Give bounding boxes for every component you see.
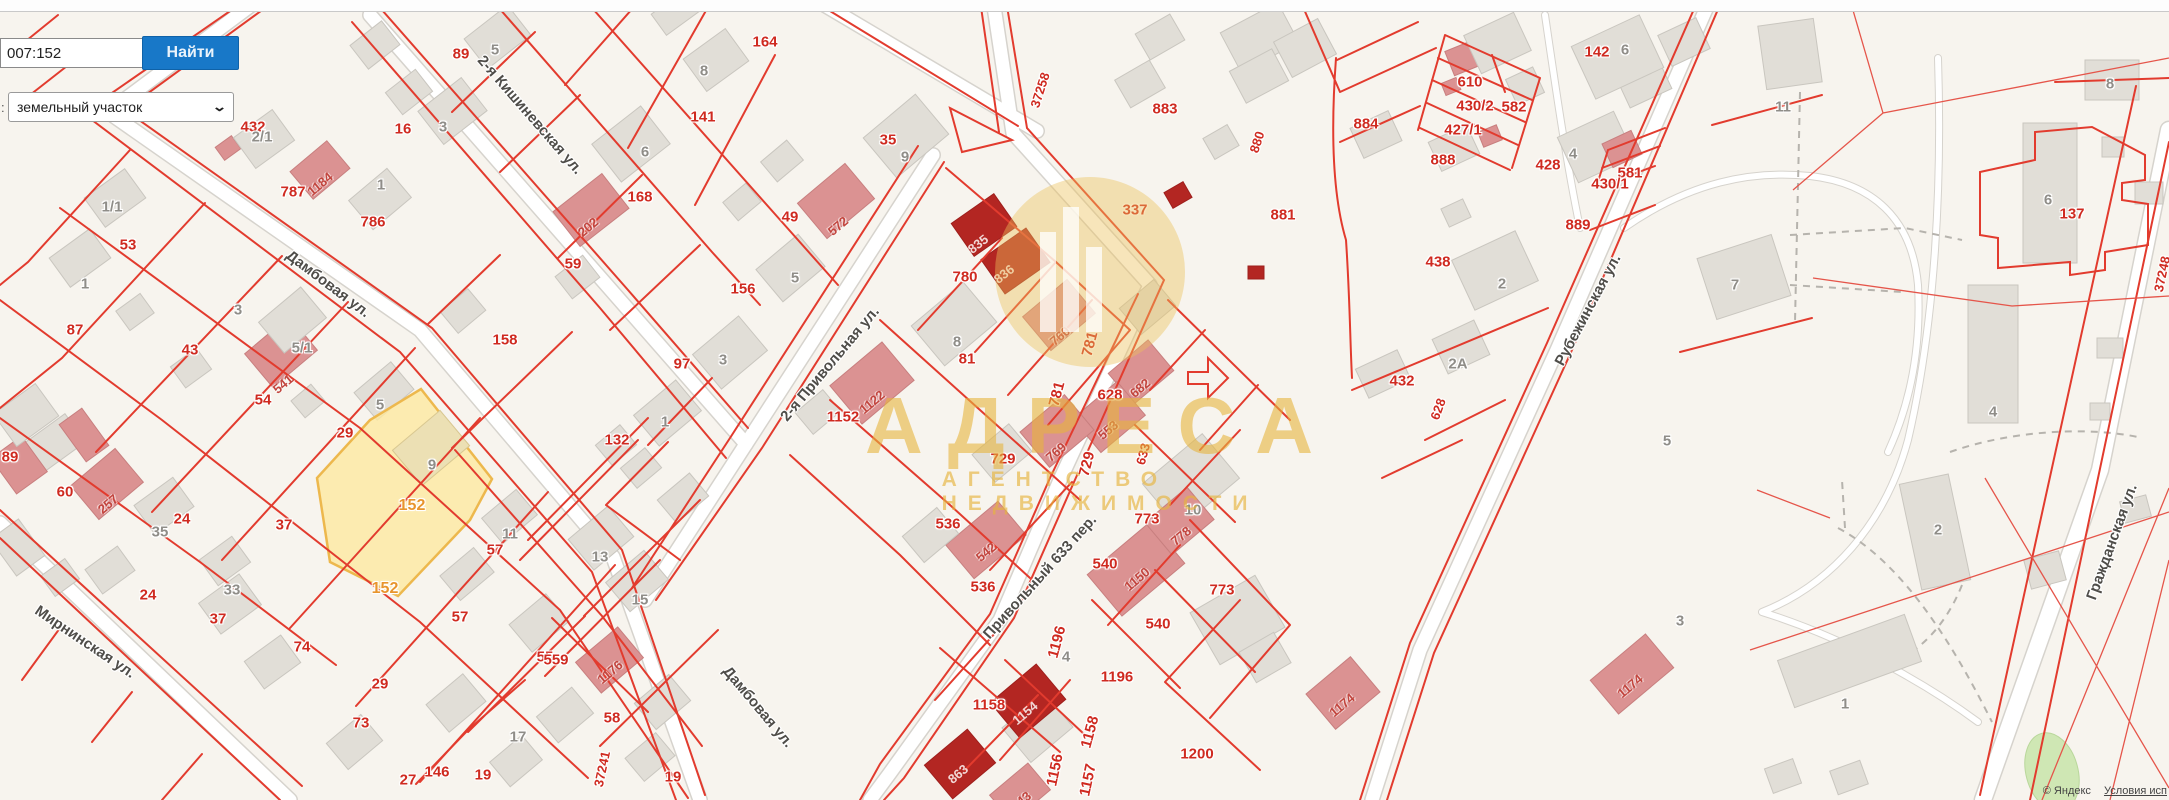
cadastral-search-input[interactable]	[0, 38, 144, 68]
search-button[interactable]: Найти	[142, 36, 239, 70]
object-type-value: земельный участок	[17, 99, 142, 115]
cadastral-map-app: 4327877861689164141168591581569713249355…	[0, 0, 2169, 800]
building	[2090, 403, 2110, 420]
provider-copyright: © Яндекс	[2043, 785, 2091, 797]
terms-of-use-link[interactable]: Условия исп	[2104, 785, 2167, 797]
object-type-select[interactable]: земельный участок ⌄	[8, 92, 234, 122]
map-viewport[interactable]: 4327877861689164141168591581569713249355…	[0, 12, 2169, 800]
building	[2097, 338, 2123, 358]
page-top-strip	[0, 0, 2169, 12]
category-label: :	[1, 100, 5, 115]
building	[1758, 18, 1822, 89]
map-attribution: © Яндекс Условия исп	[2043, 785, 2167, 797]
building	[1248, 266, 1264, 279]
chevron-down-icon: ⌄	[212, 99, 227, 115]
map-canvas	[0, 12, 2169, 800]
building	[2023, 123, 2077, 263]
